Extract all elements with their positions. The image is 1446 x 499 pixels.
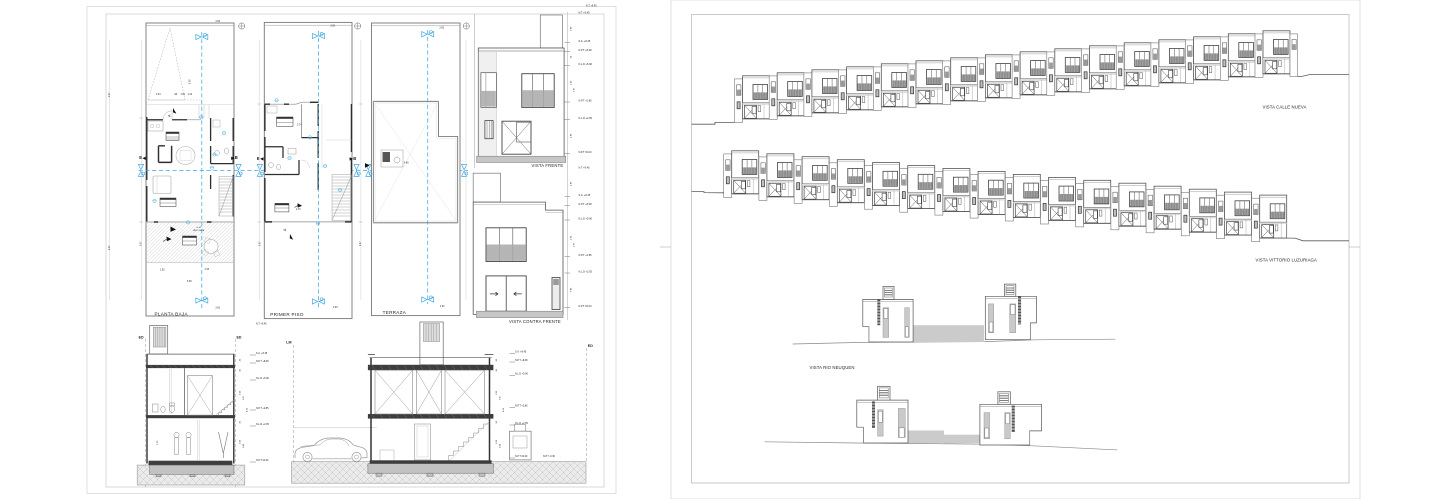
svg-text:N.P.T +2.85: N.P.T +2.85 [579, 254, 593, 257]
svg-text:N.L.D +2.05: N.L.D +2.05 [515, 422, 528, 425]
svg-text:2.23: 2.23 [156, 94, 161, 96]
svg-text:N.P.T +2.85: N.P.T +2.85 [515, 405, 528, 408]
svg-text:VISTA FRENTE: VISTA FRENTE [532, 163, 564, 168]
svg-text:VISTA CALLE NUEVA: VISTA CALLE NUEVA [1263, 105, 1307, 110]
svg-text:VISTA VITTORIO LUZURIAGA: VISTA VITTORIO LUZURIAGA [1256, 258, 1317, 263]
svg-text:B: B [235, 155, 238, 160]
svg-text:N.P.T +2.85: N.P.T +2.85 [579, 100, 593, 103]
svg-text:4.65: 4.65 [404, 163, 409, 165]
svg-text:N.P.T +8.08: N.P.T +8.08 [579, 203, 593, 206]
svg-text:2.00: 2.00 [440, 27, 445, 29]
svg-text:3.45: 3.45 [205, 269, 210, 271]
svg-text:ED: ED [139, 336, 144, 340]
svg-text:N.L.D +5.90: N.L.D +5.90 [515, 373, 528, 376]
svg-text:2.00: 2.00 [216, 308, 221, 310]
svg-text:S.A. +8.45: S.A. +8.45 [256, 352, 268, 355]
svg-text:PRIMER PISO: PRIMER PISO [270, 312, 304, 317]
svg-text:2.70: 2.70 [296, 209, 301, 211]
svg-text:2.00: 2.00 [331, 26, 336, 28]
svg-text:9.07: 9.07 [260, 241, 262, 246]
svg-text:N.P.T ±0.00: N.P.T ±0.00 [579, 305, 593, 308]
svg-text:N.L.D +2.05: N.L.D +2.05 [256, 423, 269, 426]
svg-text:N.T +9.45: N.T +9.45 [579, 167, 591, 170]
svg-text:N.P.T -0.30: N.P.T -0.30 [543, 455, 556, 458]
svg-text:+0.05: +0.05 [196, 227, 202, 229]
svg-text:B: B [353, 156, 356, 161]
svg-text:N.T +9.45: N.T +9.45 [586, 5, 597, 8]
svg-text:S.A. +8.45: S.A. +8.45 [579, 194, 591, 197]
svg-text:N.P.T +8.08: N.P.T +8.08 [256, 360, 269, 363]
svg-text:N.P.T +8.08: N.P.T +8.08 [515, 359, 528, 362]
svg-text:VISTA CONTRA FRENTE: VISTA CONTRA FRENTE [509, 319, 561, 324]
svg-text:N.P.T +2.85: N.P.T +2.85 [256, 407, 269, 410]
svg-text:ED: ED [237, 336, 242, 340]
svg-text:1.50: 1.50 [160, 270, 165, 272]
svg-text:2.00: 2.00 [440, 306, 445, 308]
svg-text:LM: LM [286, 341, 291, 345]
svg-text:N.L.D +5.90: N.L.D +5.90 [256, 377, 269, 380]
svg-text:VISTA RIO NEUQUEN: VISTA RIO NEUQUEN [810, 365, 855, 370]
svg-text:2.00: 2.00 [333, 307, 338, 309]
svg-text:N.L.D +2.05: N.L.D +2.05 [579, 271, 593, 274]
svg-text:9.07: 9.07 [141, 241, 143, 246]
svg-text:TERRAZA: TERRAZA [383, 310, 407, 315]
svg-text:N.P.T ±0.00: N.P.T ±0.00 [579, 151, 593, 154]
svg-text:9.07: 9.07 [109, 92, 111, 97]
svg-text:S.A. +8.45: S.A. +8.45 [515, 351, 527, 354]
svg-text:9.07: 9.07 [360, 241, 362, 246]
svg-text:N.P.T ±0.00: N.P.T ±0.00 [256, 459, 269, 462]
svg-text:ED: ED [588, 344, 593, 348]
svg-text:N.L.D +2.05: N.L.D +2.05 [579, 117, 593, 120]
svg-text:N.L.D +5.90: N.L.D +5.90 [579, 218, 593, 221]
svg-text:9.07: 9.07 [109, 245, 111, 250]
svg-text:N.T +9.45: N.T +9.45 [579, 12, 591, 15]
svg-text:N.P.T +8.08: N.P.T +8.08 [579, 49, 593, 52]
svg-text:5.38: 5.38 [187, 281, 192, 283]
svg-text:PLANTA BAJA: PLANTA BAJA [155, 311, 189, 316]
svg-text:5.36: 5.36 [190, 79, 192, 84]
svg-text:1.00: 1.00 [181, 94, 186, 96]
svg-text:N.T +9.45: N.T +9.45 [256, 323, 267, 326]
svg-text:PATIO BAJA: PATIO BAJA [193, 229, 205, 232]
svg-text:N.L.D +5.90: N.L.D +5.90 [579, 63, 593, 66]
svg-text:B: B [139, 155, 142, 160]
svg-text:1.16: 1.16 [188, 94, 193, 96]
svg-text:2.00: 2.00 [216, 21, 221, 23]
svg-text:S.A. +8.45: S.A. +8.45 [579, 40, 591, 43]
svg-text:N.P.T ±0.00: N.P.T ±0.00 [515, 455, 528, 458]
